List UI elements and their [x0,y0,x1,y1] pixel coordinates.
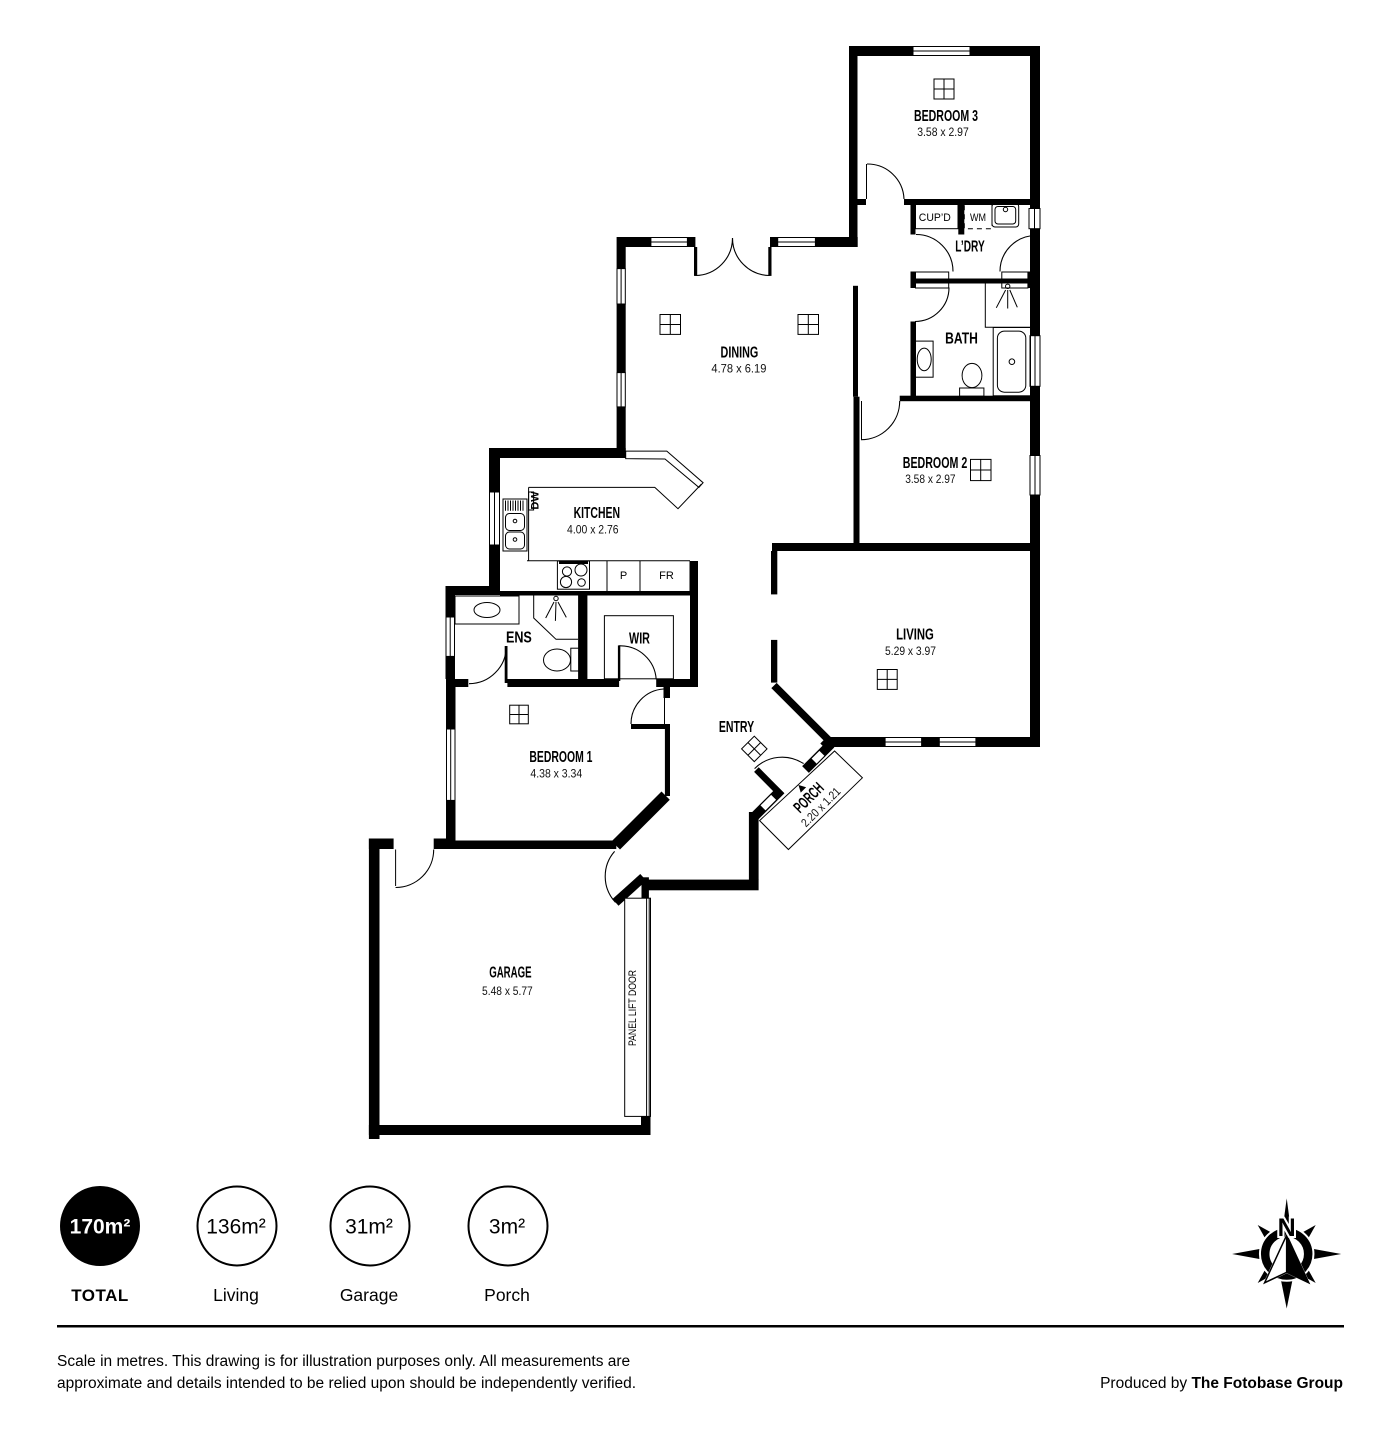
svg-text:170m²: 170m² [70,1216,131,1239]
svg-text:31m²: 31m² [345,1216,393,1239]
svg-text:L’DRY: L’DRY [955,239,985,256]
svg-text:Produced by The Fotobase Group: Produced by The Fotobase Group [1100,1375,1343,1392]
svg-text:3.58 x 2.97: 3.58 x 2.97 [905,472,956,486]
svg-text:ENS: ENS [506,630,532,647]
svg-text:BATH: BATH [945,331,978,348]
svg-text:CUP’D: CUP’D [919,212,951,224]
svg-text:Porch: Porch [484,1285,530,1305]
svg-text:3m²: 3m² [489,1216,525,1239]
svg-text:FR: FR [659,570,674,582]
svg-text:BEDROOM 2: BEDROOM 2 [903,455,968,472]
svg-text:4.00 x 2.76: 4.00 x 2.76 [567,523,619,537]
svg-text:BEDROOM 1: BEDROOM 1 [529,749,592,766]
svg-text:136m²: 136m² [206,1216,266,1239]
svg-text:PANEL LIFT DOOR: PANEL LIFT DOOR [627,970,639,1046]
svg-text:GARAGE: GARAGE [489,964,532,981]
svg-text:DINING: DINING [721,345,759,362]
svg-text:Garage: Garage [340,1285,398,1305]
svg-text:BEDROOM 3: BEDROOM 3 [914,108,978,125]
svg-text:Scale in metres. This drawing: Scale in metres. This drawing is for ill… [57,1353,630,1370]
svg-text:5.48 x 5.77: 5.48 x 5.77 [482,984,533,998]
svg-text:5.29 x 3.97: 5.29 x 3.97 [885,644,936,658]
svg-text:P: P [620,570,627,582]
svg-text:KITCHEN: KITCHEN [574,505,620,522]
svg-text:ENTRY: ENTRY [719,719,755,736]
svg-text:DW: DW [530,491,542,510]
svg-text:WIR: WIR [629,631,650,648]
svg-text:WM: WM [970,212,986,224]
svg-text:approximate and details intend: approximate and details intended to be r… [57,1375,636,1392]
svg-text:4.38 x 3.34: 4.38 x 3.34 [530,767,582,781]
svg-text:4.78 x 6.19: 4.78 x 6.19 [711,362,766,376]
svg-text:3.58 x 2.97: 3.58 x 2.97 [917,125,969,139]
svg-text:N: N [1278,1214,1296,1242]
svg-text:Living: Living [213,1285,259,1305]
svg-text:LIVING: LIVING [896,627,934,644]
svg-text:TOTAL: TOTAL [71,1286,129,1305]
